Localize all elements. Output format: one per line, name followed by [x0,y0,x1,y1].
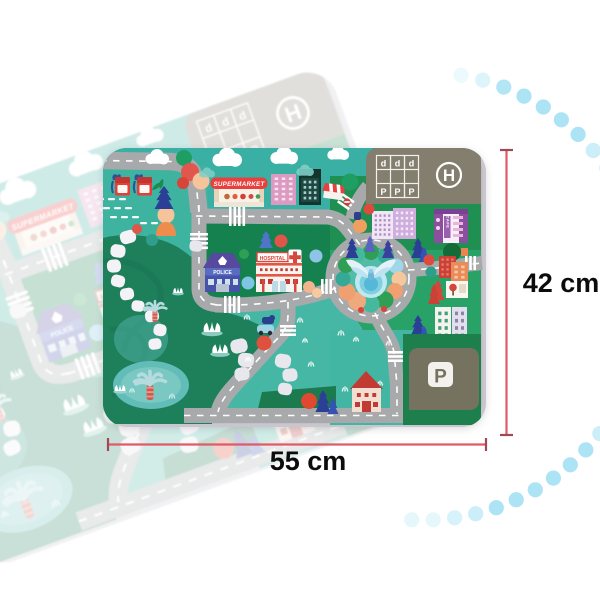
svg-text:42 cm: 42 cm [523,268,600,298]
svg-text:55 cm: 55 cm [270,446,347,476]
